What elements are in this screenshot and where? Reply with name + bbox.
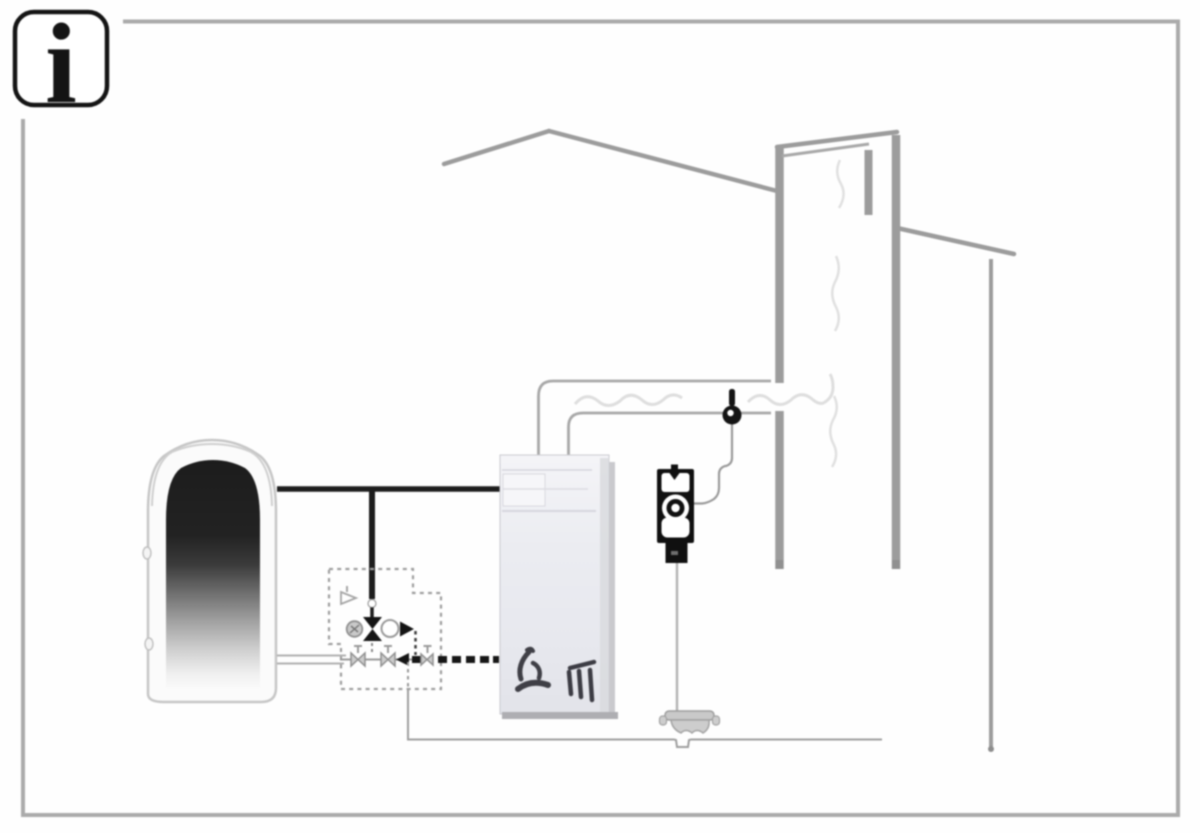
svg-text:i: i	[45, 0, 77, 127]
